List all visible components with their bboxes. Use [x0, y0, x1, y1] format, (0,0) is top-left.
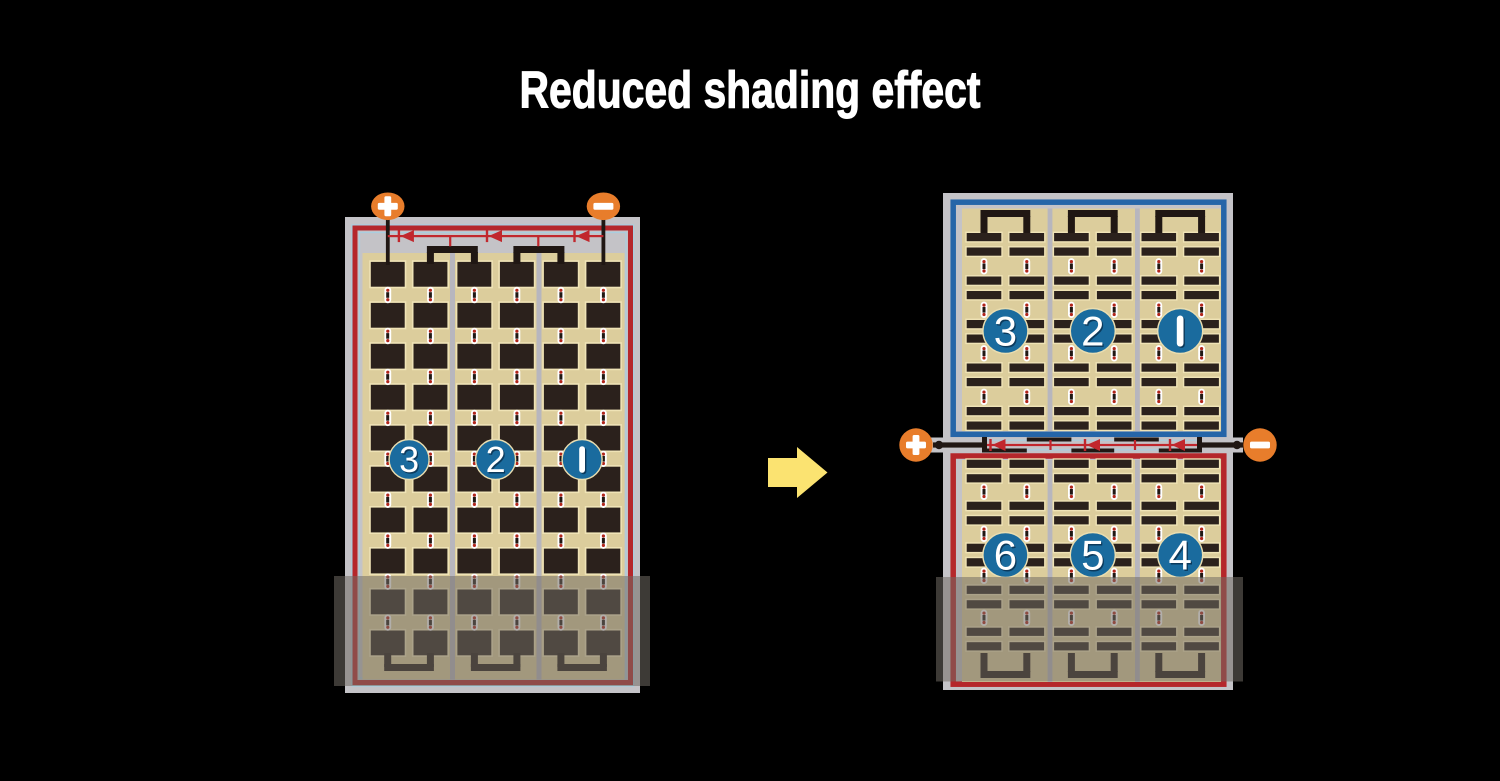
svg-text:2: 2 — [486, 439, 506, 480]
svg-text:Reduced shading effect: Reduced shading effect — [520, 62, 981, 120]
svg-text:5: 5 — [1081, 532, 1104, 579]
svg-text:6: 6 — [994, 532, 1017, 579]
svg-text:3: 3 — [399, 439, 419, 480]
svg-text:2: 2 — [1081, 308, 1104, 355]
svg-text:3: 3 — [994, 308, 1017, 355]
svg-text:4: 4 — [1169, 532, 1192, 579]
